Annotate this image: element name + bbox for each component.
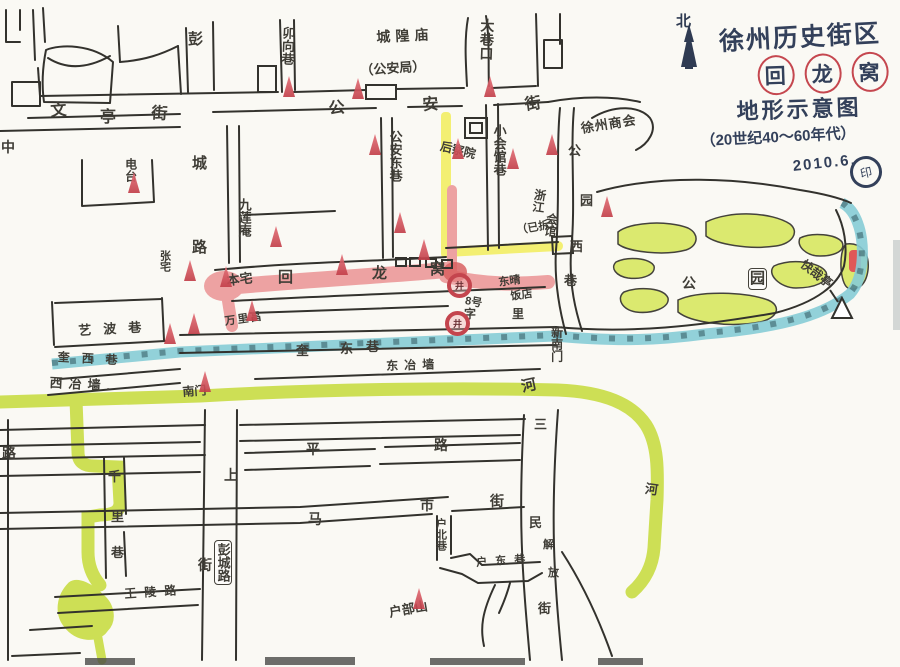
- street-pengcheng-char3: 路: [192, 240, 207, 256]
- lane-gongyuanxi-char1: 公: [568, 144, 581, 158]
- street-sanmin-char2: 民: [529, 516, 542, 530]
- street-mashi-char1: 马: [308, 512, 322, 527]
- river-kuihe: 河: [520, 377, 538, 396]
- title-circled-char: 龙: [804, 53, 842, 94]
- street-huilongwo-char3: 窝: [430, 262, 445, 278]
- street-gongan-char2: 安: [422, 97, 439, 115]
- sign-pengchenglu: 彭城路: [214, 540, 232, 585]
- lane-qianli-char2: 里: [111, 510, 124, 524]
- lane-xiaohuiguan: 小会馆巷: [492, 124, 506, 176]
- lane-daxiangkou: 大巷口: [479, 18, 495, 60]
- street-jiefang-char2: 放: [548, 568, 559, 580]
- street-wenting-char2: 亭: [100, 110, 116, 127]
- map-title-line3: 地形示意图: [736, 90, 862, 126]
- place-jiulianan: 九莲庵: [237, 198, 251, 237]
- street-jingzili-char2: 里: [512, 308, 524, 321]
- street-pengcheng-char2: 城: [192, 156, 207, 172]
- lane-qianli-char1: 千: [108, 470, 121, 484]
- street-zhongshan-char2: 路: [2, 446, 16, 461]
- lane-hubei: 户北巷: [434, 518, 446, 551]
- lane-gongyuanxi-char3: 西: [570, 240, 583, 254]
- street-pinglu-char2: 路: [434, 438, 448, 453]
- street-huilongwo-char1: 回: [278, 270, 293, 286]
- street-gongan-char3: 街: [524, 96, 542, 115]
- street-mashi-char2: 市: [420, 498, 434, 513]
- lane-gongyuanxi-char4: 巷: [564, 274, 577, 288]
- street-sanmin-char3: 街: [538, 602, 551, 616]
- place-zhangzhai: 张宅: [158, 250, 170, 272]
- lane-gongyuanxi-char2: 园: [580, 194, 593, 208]
- scanned-hand-drawn-map: 徐州历史街区 回龙窝 地形示意图 （20世纪40～60年代） 2010.6. 印…: [0, 0, 900, 667]
- street-gongan-char1: 公: [328, 100, 346, 118]
- lane-kuidong-char3: 巷: [366, 340, 379, 354]
- street-xiyeqiang: 西冶墙.: [49, 376, 116, 393]
- park-label-gong: 公: [682, 276, 696, 291]
- north-label: 北: [676, 10, 691, 31]
- street-pinglu-char1: 平: [306, 442, 320, 457]
- scan-artifacts: [85, 240, 900, 665]
- chenghuangmiao-building: [366, 85, 396, 99]
- street-pengcheng-char1: 彭: [188, 32, 203, 48]
- lane-qianli-char3: 巷: [111, 546, 124, 560]
- park-label-yuan: 园: [748, 268, 767, 290]
- place-zhejiang-huiguan-1: 浙江: [531, 188, 547, 214]
- lane-maoxiangxiang: 卯向巷: [280, 26, 295, 65]
- lane-gongandong: 公安东巷: [388, 130, 402, 182]
- street-sanmin-char1: 三: [534, 418, 547, 432]
- street-jiefang-char1: 解: [543, 540, 554, 552]
- seal-character: 印: [858, 162, 873, 181]
- lane-kuidong-char2: 东: [340, 342, 353, 356]
- street-mashi-char3: 街: [490, 494, 504, 509]
- street-shangjie-char2: 街: [198, 558, 212, 573]
- title-circled-char: 回: [757, 55, 795, 96]
- street-huilongwo-char2: 龙: [372, 266, 387, 282]
- place-chenghuangmiao: 城隍庙: [376, 27, 434, 45]
- street-wenting-char3: 街: [151, 106, 168, 124]
- well-marker: 井: [447, 273, 472, 298]
- title-circled-char: 窝: [851, 51, 889, 92]
- street-dongyeqiang: 东冶墙: [386, 358, 440, 372]
- well-marker: 井: [445, 311, 470, 336]
- street-shangjie-char1: 上: [224, 468, 238, 483]
- street-wenting-char1: 文: [50, 103, 67, 121]
- street-zhongshan-char1: 中: [1, 140, 15, 155]
- lane-kuidong-char1: 奎: [296, 344, 309, 358]
- gate-xinnanmen: 新南门: [550, 326, 563, 362]
- river-east: 河: [644, 482, 659, 497]
- map-title-line2: 回龙窝: [752, 51, 894, 96]
